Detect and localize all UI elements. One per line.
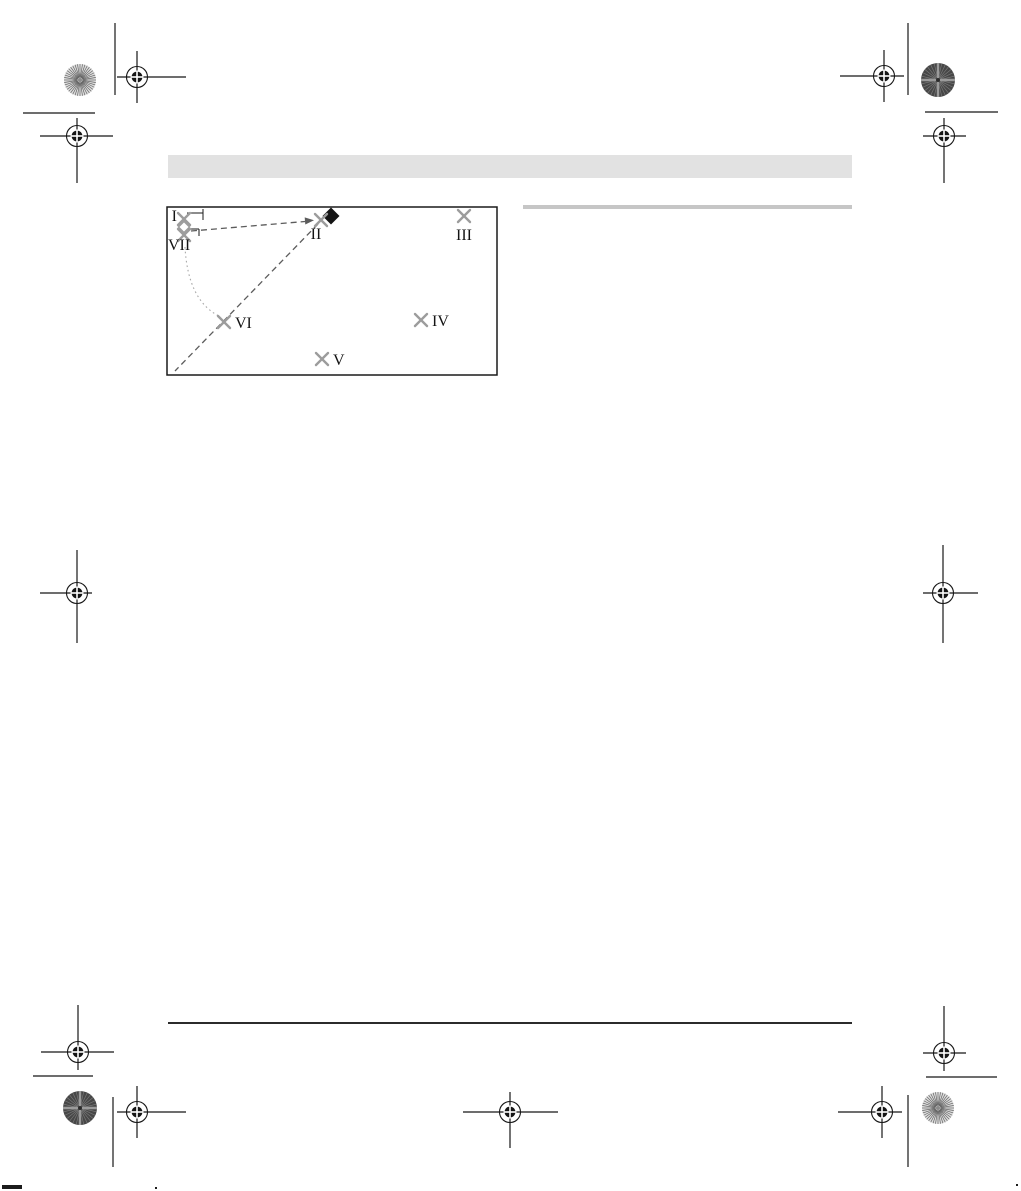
manual-page: IIIIIIIVVVIVII — [0, 0, 1021, 1191]
position-marker-II — [315, 214, 327, 226]
position-label-III: III — [456, 227, 472, 244]
position-marker-VI — [218, 316, 230, 328]
position-marker-IV — [415, 314, 427, 326]
dotted-guide-curve — [185, 247, 221, 317]
diagram-frame — [167, 207, 497, 375]
position-label-VII: VII — [168, 237, 190, 254]
position-marker-I — [178, 213, 190, 225]
position-label-IV: IV — [432, 313, 449, 330]
position-label-I: I — [172, 208, 177, 225]
dashed-path-line — [175, 224, 318, 371]
positions-diagram: IIIIIIIVVVIVII — [0, 0, 1021, 1191]
page-edge-artifact — [155, 1187, 157, 1189]
position-label-VI: VI — [235, 315, 252, 332]
arrowhead-icon — [305, 217, 314, 224]
footer-rule — [168, 1022, 852, 1024]
page-edge-artifact — [2, 1185, 22, 1189]
position-label-V: V — [333, 352, 345, 369]
page-edge-artifact — [1016, 1184, 1018, 1186]
dashed-path-line — [191, 222, 305, 232]
position-label-II: II — [311, 226, 322, 243]
position-marker-V — [316, 353, 328, 365]
position-marker-III — [458, 210, 470, 222]
